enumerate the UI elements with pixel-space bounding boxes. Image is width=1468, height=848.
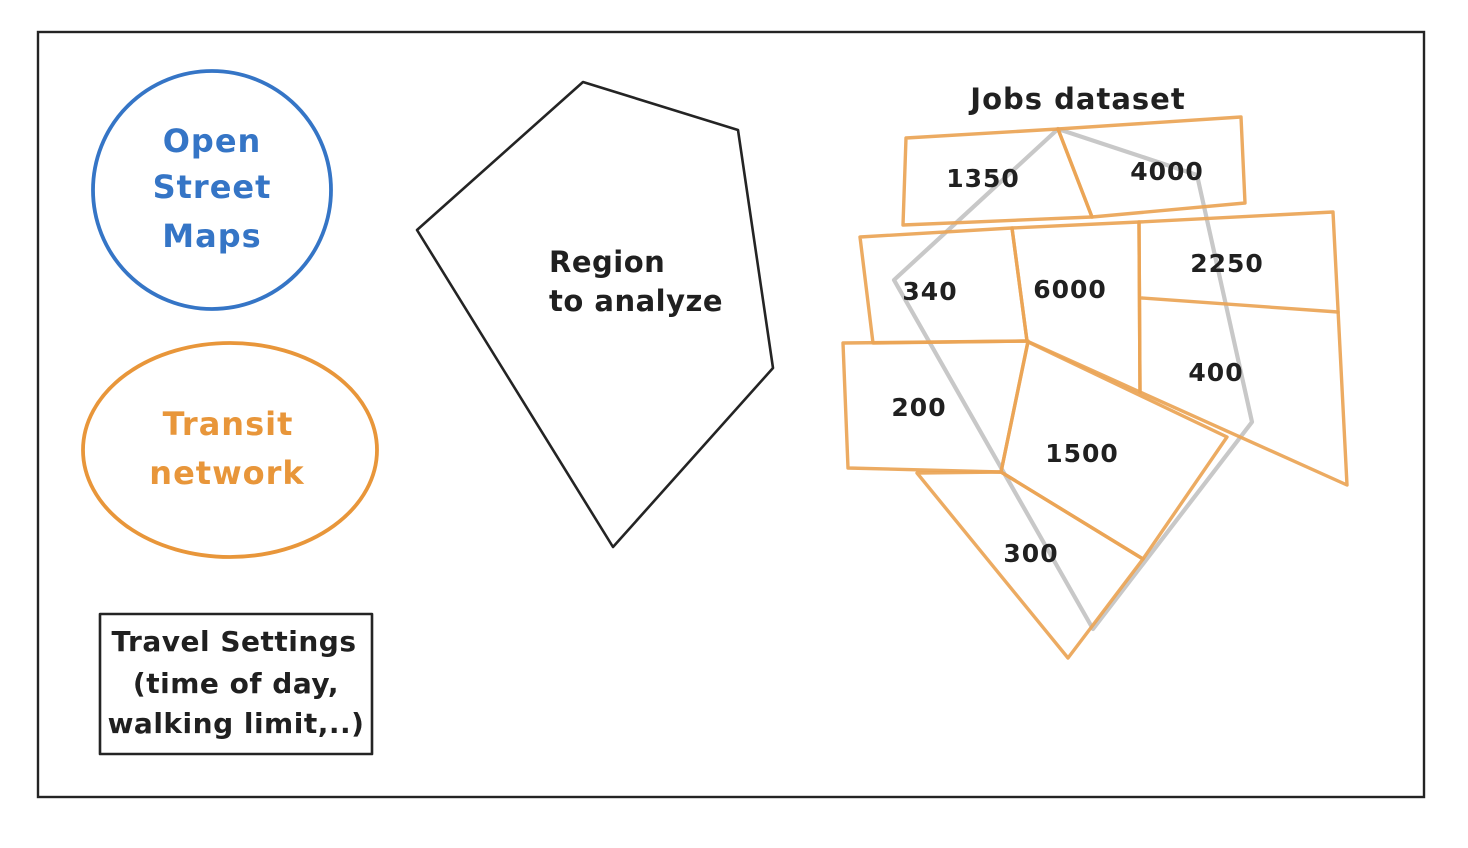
diagram-svg: Open Street Maps Transit network Travel … xyxy=(0,0,1468,848)
transit-ellipse xyxy=(83,343,377,557)
diagram-canvas: Open Street Maps Transit network Travel … xyxy=(0,0,1468,848)
region-label-line2: to analyze xyxy=(549,284,723,318)
jobs-zone-2250-value: 2250 xyxy=(1190,249,1264,278)
jobs-zone-1350-value: 1350 xyxy=(946,164,1020,193)
travel-settings-line1: Travel Settings xyxy=(112,625,357,658)
osm-label-line2: Street xyxy=(153,168,272,206)
jobs-zone-340-value: 340 xyxy=(902,277,957,306)
jobs-zone-2250-400-divider-line xyxy=(1142,298,1338,312)
osm-label-line1: Open xyxy=(163,122,262,160)
jobs-title: Jobs dataset xyxy=(968,82,1185,116)
jobs-zone-200-value: 200 xyxy=(891,393,946,422)
travel-settings-line3: walking limit,..) xyxy=(108,707,365,740)
jobs-zone-300-value: 300 xyxy=(1003,539,1058,568)
region-label-line1: Region xyxy=(549,245,665,279)
transit-label-line2: network xyxy=(149,454,304,492)
travel-settings-line2: (time of day, xyxy=(133,667,339,700)
jobs-zone-4000-value: 4000 xyxy=(1130,157,1204,186)
jobs-zone-6000-value: 6000 xyxy=(1033,275,1107,304)
osm-label-line3: Maps xyxy=(162,217,261,255)
jobs-zone-1500-value: 1500 xyxy=(1045,439,1119,468)
jobs-zone-400-value: 400 xyxy=(1188,358,1243,387)
transit-label-line1: Transit xyxy=(163,405,294,443)
